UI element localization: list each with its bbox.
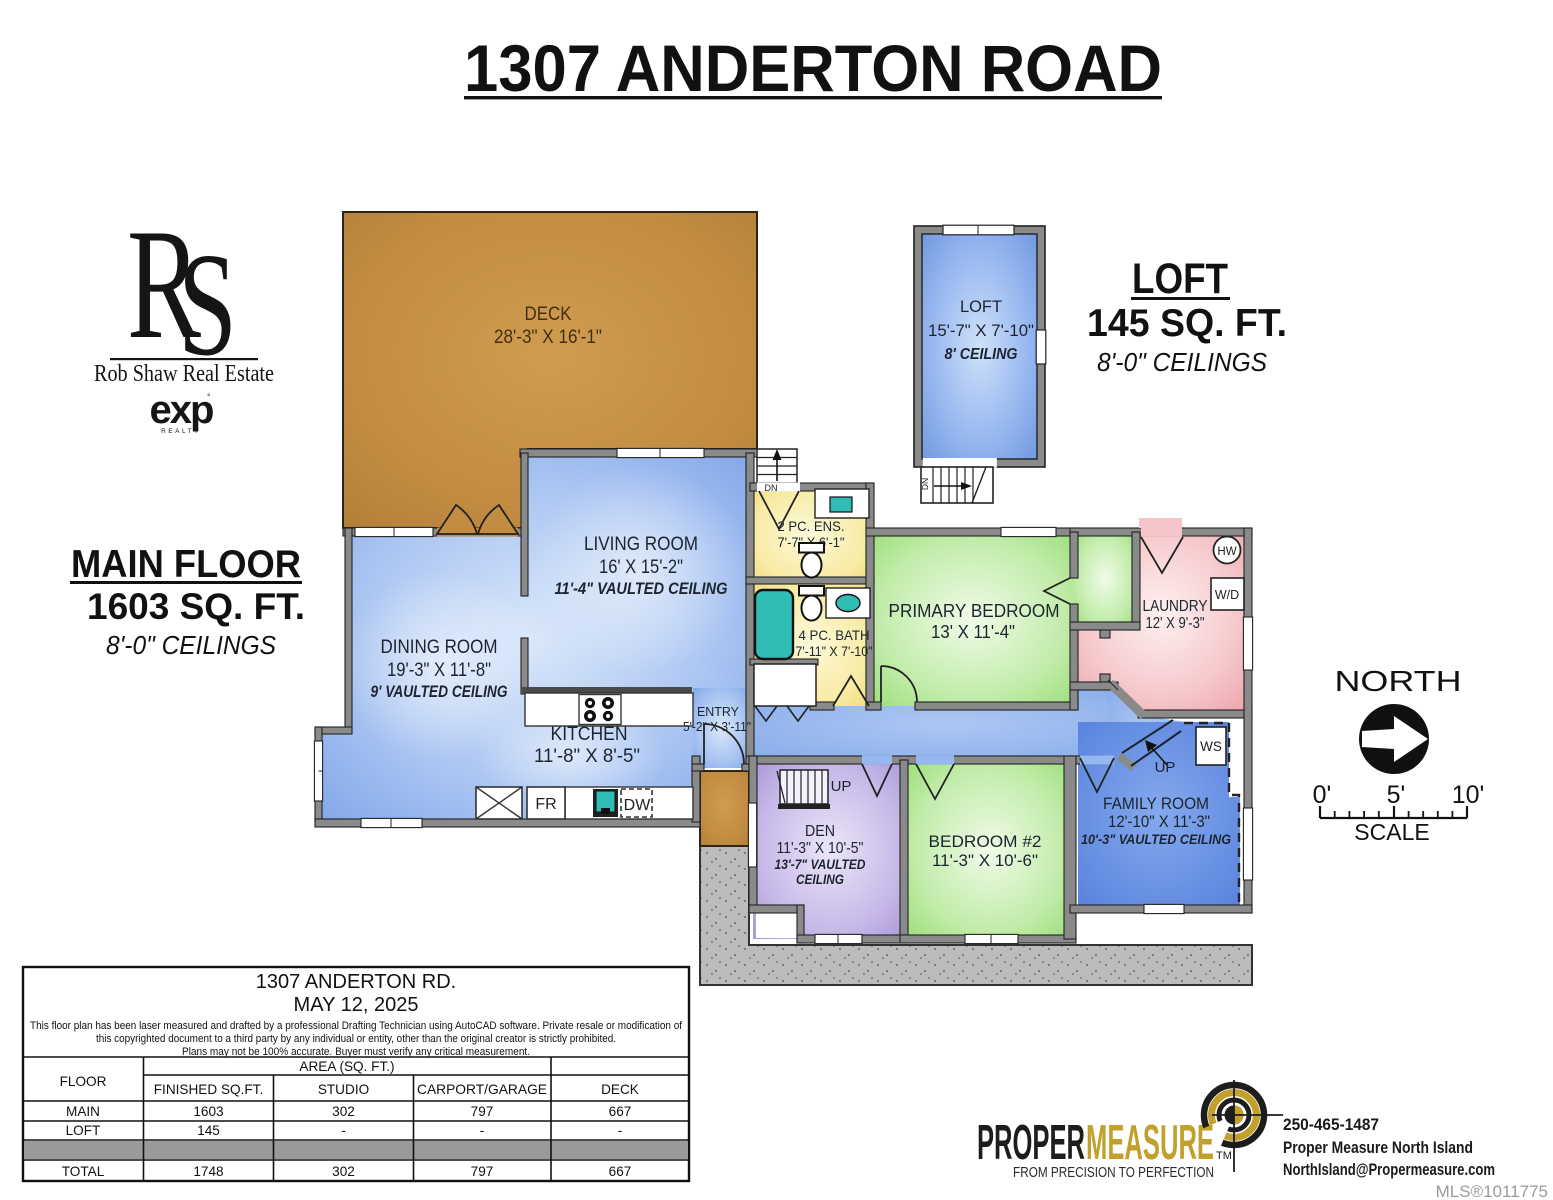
svg-text:UP: UP [1155,759,1176,776]
svg-text:MAY 12, 2025: MAY 12, 2025 [294,994,419,1016]
svg-text:LIVING ROOM: LIVING ROOM [584,534,698,555]
svg-text:DEN: DEN [805,823,835,840]
svg-text:1307 ANDERTON RD.: 1307 ANDERTON RD. [256,971,456,993]
svg-text:28'-3" X 16'-1": 28'-3" X 16'-1" [494,327,602,348]
svg-text:DW: DW [624,797,652,814]
svg-text:Proper Measure North Island: Proper Measure North Island [1283,1138,1473,1157]
svg-text:-: - [480,1123,485,1138]
svg-text:302: 302 [332,1104,355,1119]
svg-text:REALTY: REALTY [161,428,201,435]
svg-text:16' X 15'-2": 16' X 15'-2" [599,557,683,578]
svg-text:MEASURE: MEASURE [1086,1116,1214,1170]
svg-text:ENTRY: ENTRY [697,704,739,719]
svg-text:TM: TM [1216,1150,1232,1162]
svg-text:DINING ROOM: DINING ROOM [381,637,498,658]
svg-text:DECK: DECK [601,1082,639,1097]
svg-text:11'-3" X 10'-6": 11'-3" X 10'-6" [932,851,1038,870]
svg-text:10': 10' [1452,781,1485,809]
svg-text:12'-10" X 11'-3": 12'-10" X 11'-3" [1108,812,1210,831]
svg-text:145 SQ. FT.: 145 SQ. FT. [1087,302,1287,345]
svg-text:11'-3" X 10'-5": 11'-3" X 10'-5" [777,840,864,857]
svg-text:8'-0" CEILINGS: 8'-0" CEILINGS [106,630,277,660]
svg-text:MAIN: MAIN [66,1104,100,1119]
svg-text:4 PC. BATH: 4 PC. BATH [799,627,870,643]
svg-text:this copyrighted document to a: this copyrighted document to a third par… [96,1033,616,1045]
svg-text:MLS®1011775: MLS®1011775 [1436,1182,1548,1200]
svg-text:12' X 9'-3": 12' X 9'-3" [1146,615,1205,632]
svg-text:KITCHEN: KITCHEN [551,724,628,745]
svg-text:CEILING: CEILING [796,872,844,887]
svg-text:797: 797 [471,1104,494,1119]
svg-text:MAIN FLOOR: MAIN FLOOR [71,543,301,586]
svg-text:-: - [618,1123,623,1138]
svg-text:DECK: DECK [525,304,572,325]
svg-text:STUDIO: STUDIO [318,1082,369,1097]
svg-text:W/D: W/D [1215,588,1239,602]
svg-text:TOTAL: TOTAL [62,1164,105,1179]
svg-text:LAUNDRY: LAUNDRY [1143,598,1208,615]
svg-text:BEDROOM #2: BEDROOM #2 [929,832,1042,851]
svg-text:5': 5' [1387,781,1406,809]
svg-text:797: 797 [471,1164,494,1179]
svg-text:9' VAULTED CEILING: 9' VAULTED CEILING [371,683,508,701]
svg-text:13' X 11'-4": 13' X 11'-4" [931,622,1015,642]
svg-text:PROPER: PROPER [977,1116,1085,1170]
svg-text:FLOOR: FLOOR [60,1074,107,1089]
svg-text:5'-2" X 3'-11": 5'-2" X 3'-11" [683,719,751,734]
svg-text:NORTH: NORTH [1335,666,1462,698]
svg-text:This floor plan has been laser: This floor plan has been laser measured … [30,1020,683,1032]
svg-text:WS: WS [1200,739,1222,754]
svg-text:19'-3" X 11'-8": 19'-3" X 11'-8" [387,660,491,681]
svg-text:10'-3" VAULTED CEILING: 10'-3" VAULTED CEILING [1081,831,1231,847]
svg-text:FROM PRECISION TO PERFECTION: FROM PRECISION TO PERFECTION [1013,1165,1214,1181]
svg-text:Rob Shaw Real Estate: Rob Shaw Real Estate [94,361,274,387]
svg-text:HW: HW [1217,546,1236,558]
svg-text:PRIMARY BEDROOM: PRIMARY BEDROOM [889,601,1060,621]
svg-text:1603 SQ. FT.: 1603 SQ. FT. [87,586,305,627]
svg-text:AREA (SQ. FT.): AREA (SQ. FT.) [299,1059,394,1074]
svg-text:667: 667 [609,1164,632,1179]
svg-text:1748: 1748 [193,1164,223,1179]
svg-text:DN: DN [765,483,778,493]
svg-text:302: 302 [332,1164,355,1179]
svg-text:250-465-1487: 250-465-1487 [1283,1115,1379,1134]
svg-text:2 PC. ENS.: 2 PC. ENS. [778,518,845,534]
svg-text:LOFT: LOFT [66,1123,101,1138]
svg-text:8'-0" CEILINGS: 8'-0" CEILINGS [1097,347,1268,377]
svg-text:LOFT: LOFT [960,297,1002,316]
svg-text:11'-8" X 8'-5": 11'-8" X 8'-5" [534,746,640,767]
svg-text:DN: DN [920,478,930,490]
svg-text:1603: 1603 [193,1104,223,1119]
svg-text:SCALE: SCALE [1354,819,1429,845]
svg-text:0': 0' [1313,781,1332,809]
svg-text:CARPORT/GARAGE: CARPORT/GARAGE [417,1082,547,1097]
svg-text:667: 667 [609,1104,632,1119]
svg-text:FAMILY ROOM: FAMILY ROOM [1103,794,1209,813]
svg-text:145: 145 [197,1123,220,1138]
svg-text:8' CEILING: 8' CEILING [945,346,1018,363]
svg-text:°: ° [207,392,211,402]
svg-text:NorthIsland@Propermeasure.com: NorthIsland@Propermeasure.com [1283,1160,1495,1179]
svg-text:FR: FR [535,796,556,813]
svg-text:-: - [341,1123,346,1138]
svg-text:11'-4" VAULTED CEILING: 11'-4" VAULTED CEILING [555,580,728,598]
svg-text:1307 ANDERTON ROAD: 1307 ANDERTON ROAD [464,31,1162,105]
svg-text:FINISHED SQ.FT.: FINISHED SQ.FT. [154,1082,264,1097]
svg-text:UP: UP [831,778,852,795]
svg-text:exp: exp [150,388,213,432]
svg-text:7'-11" X 7'-10": 7'-11" X 7'-10" [796,643,873,659]
svg-text:LOFT: LOFT [1132,255,1228,303]
svg-text:15'-7" X 7'-10": 15'-7" X 7'-10" [928,321,1034,340]
svg-text:13'-7" VAULTED: 13'-7" VAULTED [775,857,866,872]
